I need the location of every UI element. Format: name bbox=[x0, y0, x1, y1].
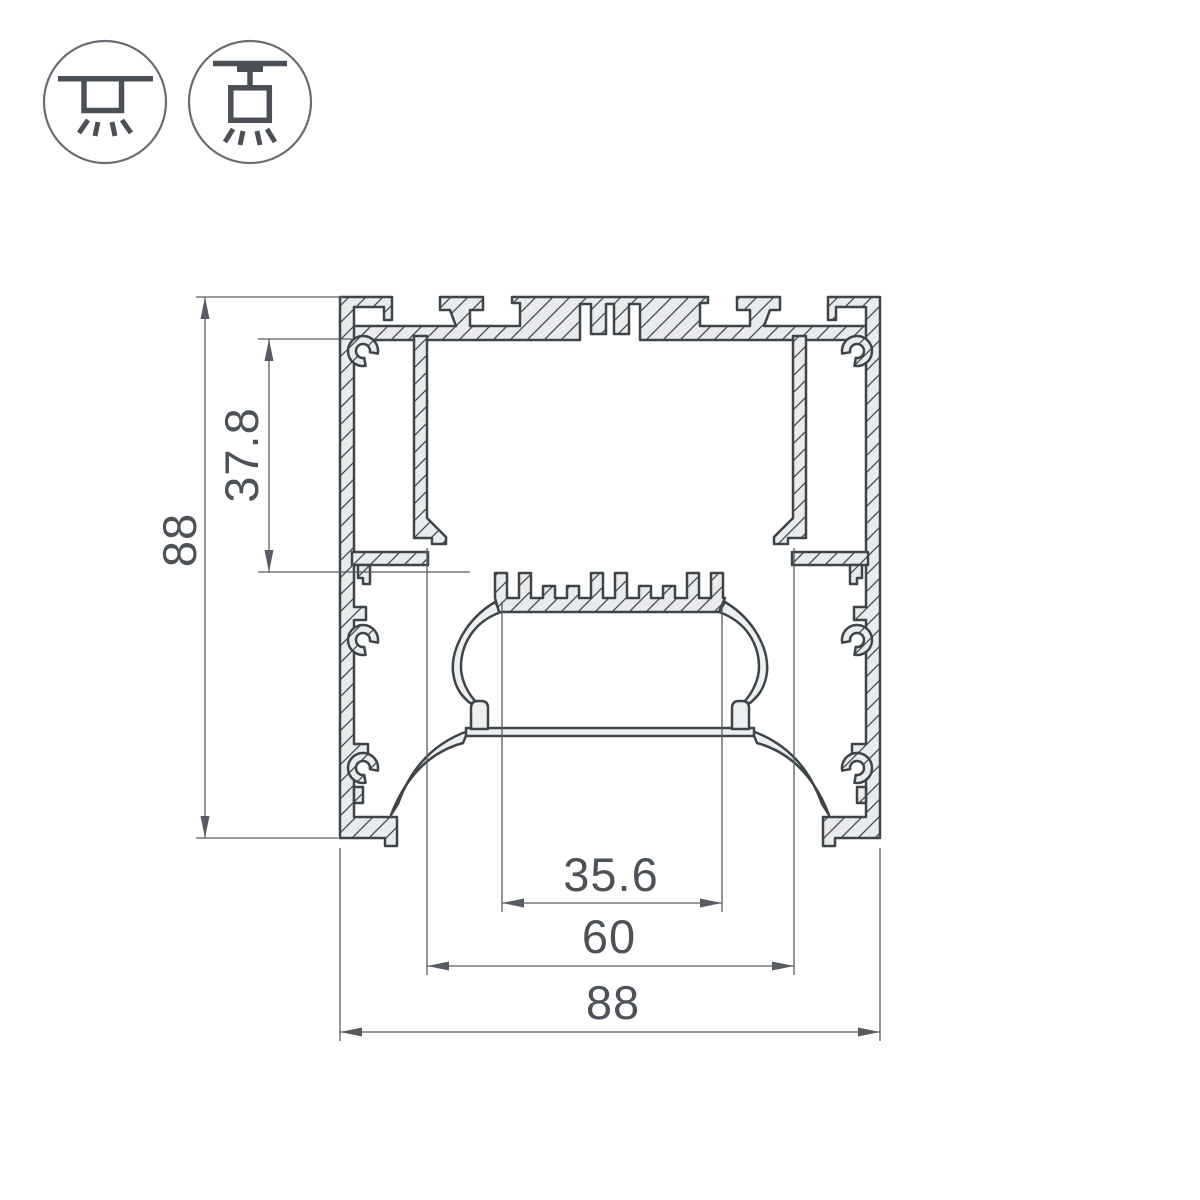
dim-overall-width-label: 88 bbox=[586, 976, 640, 1029]
led-bottom-plate bbox=[466, 728, 754, 736]
boss-step bbox=[354, 787, 363, 803]
strip-clip-left bbox=[471, 701, 488, 729]
technical-drawing-page: 88 37.8 35.6 60 88 bbox=[0, 0, 1200, 1200]
box-shelf bbox=[792, 552, 868, 565]
strip-clip-right bbox=[732, 701, 749, 729]
boss-step bbox=[857, 787, 866, 803]
dim-opening-width-label: 60 bbox=[582, 910, 636, 963]
dim-box-depth-label: 37.8 bbox=[215, 407, 268, 502]
drawing-canvas: 88 37.8 35.6 60 88 bbox=[0, 0, 1200, 1200]
dim-overall-height-label: 88 bbox=[153, 513, 206, 567]
box-shelf bbox=[352, 552, 428, 565]
dim-led-shelf-width-label: 35.6 bbox=[563, 848, 658, 901]
